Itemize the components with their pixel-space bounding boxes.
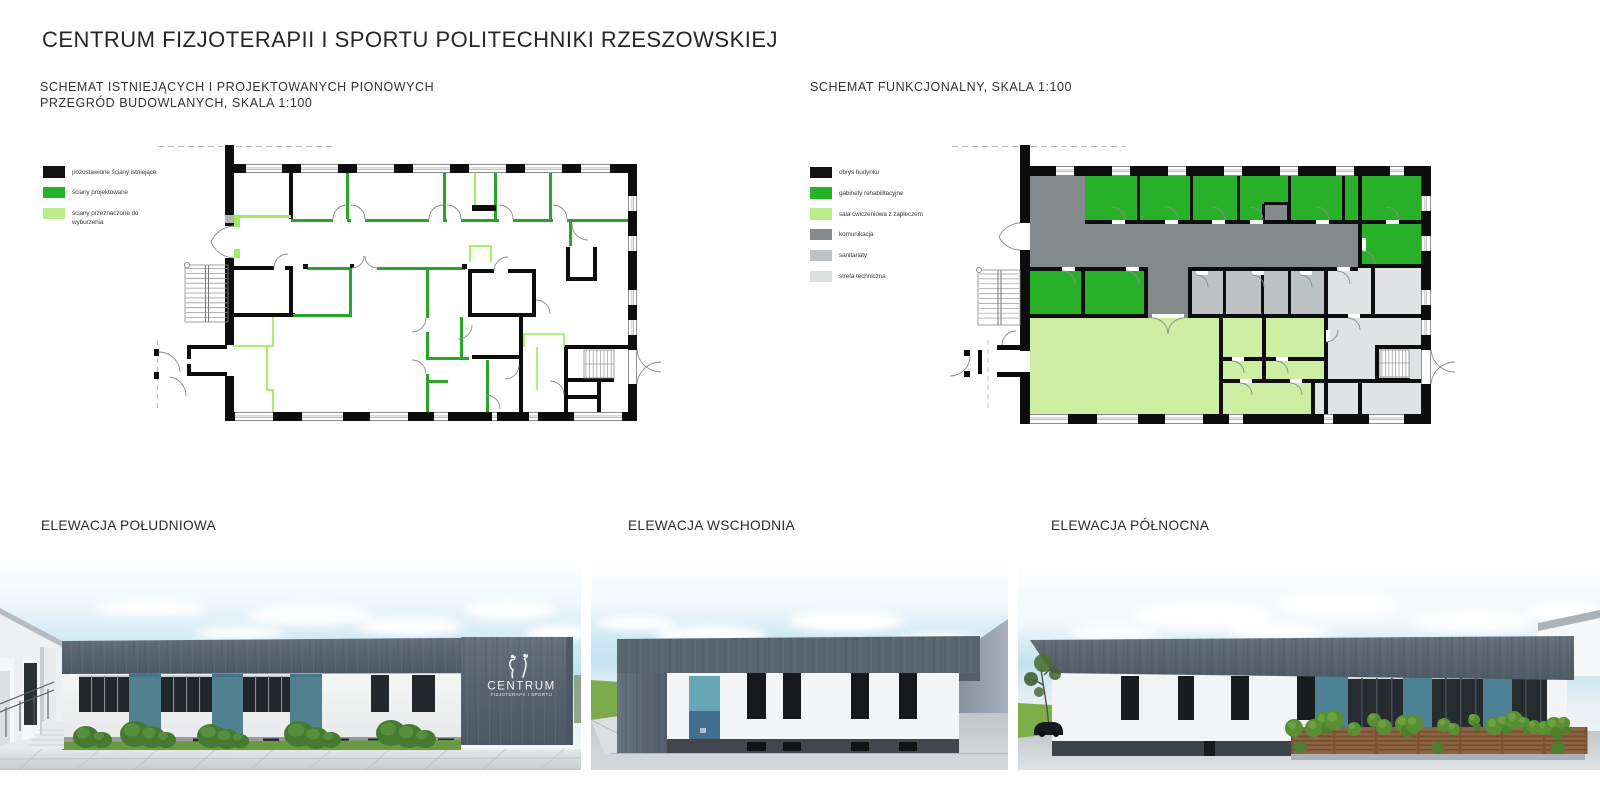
- svg-text:CENTRUM: CENTRUM: [487, 680, 555, 693]
- svg-text:FIZJOTERAPII I SPORTU: FIZJOTERAPII I SPORTU: [491, 692, 553, 697]
